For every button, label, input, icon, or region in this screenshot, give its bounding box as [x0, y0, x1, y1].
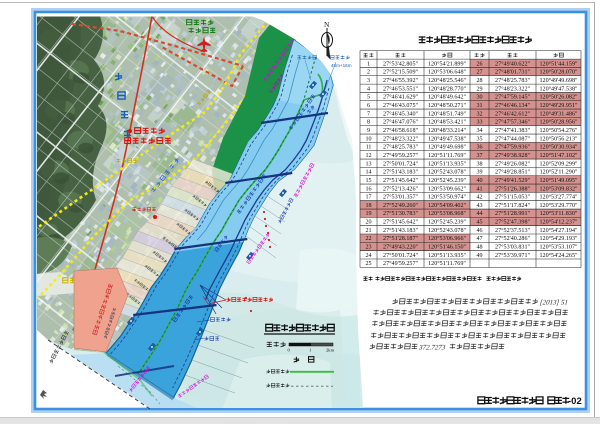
svg-text:27°49'59.257": 27°49'59.257"	[383, 260, 418, 267]
svg-text:27°48'25.783": 27°48'25.783"	[495, 77, 530, 84]
svg-text:27°49'40.622": 27°49'40.622"	[495, 60, 530, 67]
svg-text:120°48'50.271": 120°48'50.271"	[428, 102, 467, 109]
svg-text:120°50'30.934": 120°50'30.934"	[539, 144, 578, 151]
svg-text:21: 21	[365, 228, 371, 234]
svg-text:N: N	[324, 20, 330, 29]
svg-text:120°51'13.935": 120°51'13.935"	[428, 160, 467, 167]
svg-text:14: 14	[365, 170, 371, 176]
svg-text:120°52'43.078": 120°52'43.078"	[428, 227, 467, 234]
svg-text:120°48'25.546": 120°48'25.546"	[428, 77, 467, 84]
svg-text:18: 18	[365, 203, 371, 209]
svg-text:120°50'54.276": 120°50'54.276"	[539, 127, 578, 134]
svg-text:120°49'49.698": 120°49'49.698"	[539, 77, 578, 84]
svg-text:120°53'53.107": 120°53'53.107"	[539, 244, 578, 251]
svg-text:11: 11	[366, 145, 372, 151]
svg-text:47: 47	[476, 236, 482, 242]
svg-text:27°51'43.183": 27°51'43.183"	[383, 169, 418, 176]
svg-text:27°46'55.392": 27°46'55.392"	[383, 77, 418, 84]
svg-text:45: 45	[476, 220, 482, 226]
svg-text:120°53'50.974": 120°53'50.974"	[428, 194, 467, 201]
svg-text:27°51'43.183": 27°51'43.183"	[383, 227, 418, 234]
svg-text:120°53'08.968": 120°53'08.968"	[428, 210, 467, 217]
svg-text:49: 49	[476, 253, 482, 259]
svg-text:27°46'58.618": 27°46'58.618"	[383, 127, 418, 134]
svg-text:27°47'57.346": 27°47'57.346"	[495, 119, 530, 126]
svg-text:27°51'30.783": 27°51'30.783"	[383, 210, 418, 217]
svg-text:27°47'44.087": 27°47'44.087"	[495, 135, 530, 142]
svg-text:27°52'40.286": 27°52'40.286"	[495, 235, 530, 242]
svg-text:27°46'53.551": 27°46'53.551"	[383, 85, 418, 92]
svg-text:120°53'29.770": 120°53'29.770"	[539, 202, 578, 209]
svg-text:27°48'23.322": 27°48'23.322"	[383, 135, 418, 142]
svg-text:15: 15	[365, 178, 371, 184]
svg-text:27°46'47.076": 27°46'47.076"	[383, 119, 418, 126]
svg-text:27°53'01.357": 27°53'01.357"	[383, 194, 418, 201]
svg-text:38: 38	[476, 161, 482, 167]
svg-text:27°51'26.388": 27°51'26.388"	[495, 185, 530, 192]
svg-text:27°52'49.260": 27°52'49.260"	[383, 202, 418, 209]
svg-text:27°51'28.187": 27°51'28.187"	[383, 235, 418, 242]
svg-text:120°48'49.642": 120°48'49.642"	[428, 94, 467, 101]
svg-text:25: 25	[365, 261, 371, 267]
svg-text:4: 4	[367, 86, 370, 92]
svg-text:40: 40	[476, 178, 482, 184]
svg-text:6: 6	[367, 103, 370, 109]
svg-text:34: 34	[476, 128, 482, 134]
svg-text:27°51'45.642": 27°51'45.642"	[383, 177, 418, 184]
svg-text:1: 1	[367, 61, 370, 67]
svg-text:24: 24	[365, 253, 371, 259]
svg-text:2km: 2km	[326, 348, 335, 353]
svg-text:27°49'59.257": 27°49'59.257"	[383, 152, 418, 159]
svg-text:120°54'09.402": 120°54'09.402"	[428, 202, 467, 209]
svg-text:2: 2	[367, 70, 370, 76]
svg-text:27°48'01.731": 27°48'01.731"	[495, 69, 530, 76]
svg-text:120°54'29.193": 120°54'29.193"	[539, 235, 578, 242]
svg-text:120°51'49.095": 120°51'49.095"	[539, 177, 578, 184]
svg-text:120°54'24.265": 120°54'24.265"	[539, 252, 578, 259]
svg-text:22: 22	[365, 236, 371, 242]
svg-text:30: 30	[476, 95, 482, 101]
svg-text:372.7273: 372.7273	[418, 344, 447, 352]
svg-text:27°46'45.340": 27°46'45.340"	[383, 110, 418, 117]
svg-text:27°53'39.971": 27°53'39.971"	[495, 252, 530, 259]
svg-text:29: 29	[476, 86, 482, 92]
svg-text:7: 7	[367, 111, 370, 117]
svg-text:120°54'27.194": 120°54'27.194"	[539, 227, 578, 234]
svg-text:39: 39	[476, 170, 482, 176]
svg-text:120°49'47.538": 120°49'47.538"	[539, 85, 578, 92]
svg-text:27°50'01.724": 27°50'01.724"	[383, 252, 418, 259]
svg-text:120°53'06.648": 120°53'06.648"	[428, 69, 467, 76]
svg-text:23: 23	[365, 245, 371, 251]
svg-text:27°52'15.509": 27°52'15.509"	[383, 69, 418, 76]
svg-text:16: 16	[365, 186, 371, 192]
svg-text:27°47'41.383": 27°47'41.383"	[495, 127, 530, 134]
svg-text:120°50'28.070": 120°50'28.070"	[539, 69, 578, 76]
svg-text:42: 42	[476, 195, 482, 201]
svg-text:120°49'47.538": 120°49'47.538"	[428, 135, 467, 142]
svg-text:120°48'53.421": 120°48'53.421"	[428, 119, 467, 126]
svg-text:5: 5	[367, 95, 370, 101]
svg-text:13: 13	[365, 161, 371, 167]
svg-text:27°48'23.322": 27°48'23.322"	[495, 85, 530, 92]
svg-text:120°48'28.770": 120°48'28.770"	[428, 85, 467, 92]
svg-text:120°51'46.150": 120°51'46.150"	[428, 244, 467, 251]
svg-text:27: 27	[476, 70, 482, 76]
svg-text:19: 19	[365, 211, 371, 217]
svg-text:120°51'13.935": 120°51'13.935"	[428, 252, 467, 259]
svg-text:32: 32	[476, 111, 482, 117]
svg-text:12: 12	[365, 153, 371, 159]
svg-text:-02: -02	[568, 396, 582, 407]
svg-text:[2013] 51: [2013] 51	[539, 299, 568, 307]
svg-text:27°51'45.642": 27°51'45.642"	[383, 219, 418, 226]
svg-text:27°47'59.936": 27°47'59.936"	[495, 144, 530, 151]
svg-text:120°50'56.213": 120°50'56.213"	[539, 135, 578, 142]
svg-text:120°48'51.749": 120°48'51.749"	[428, 110, 467, 117]
svg-text:120°53'11.830": 120°53'11.830"	[540, 210, 578, 217]
svg-text:120°50'26.082": 120°50'26.082"	[539, 94, 578, 101]
svg-text:120°53'09.662": 120°53'09.662"	[428, 185, 467, 192]
svg-text:120°52'43.078": 120°52'43.078"	[428, 169, 467, 176]
svg-text:120°52'45.239": 120°52'45.239"	[428, 219, 467, 226]
svg-text:8: 8	[367, 120, 370, 126]
svg-text:10: 10	[365, 136, 371, 142]
svg-text:27°51'15.053": 27°51'15.053"	[495, 194, 530, 201]
svg-text:20: 20	[365, 220, 371, 226]
svg-text:120°53'06.966": 120°53'06.966"	[428, 235, 467, 242]
svg-text:120°54'12.237": 120°54'12.237"	[539, 219, 578, 226]
svg-text:27°46'46.134": 27°46'46.134"	[495, 102, 530, 109]
svg-text:27°47'59.145": 27°47'59.145"	[495, 94, 530, 101]
svg-text:120°49'29.951": 120°49'29.951"	[539, 102, 578, 109]
svg-text:37: 37	[476, 153, 482, 159]
svg-text:27°52'13.426": 27°52'13.426"	[383, 185, 418, 192]
svg-text:120°48'33.214": 120°48'33.214"	[428, 127, 467, 134]
svg-text:3: 3	[367, 78, 370, 84]
svg-text:43: 43	[476, 203, 482, 209]
svg-text:35: 35	[476, 136, 482, 142]
svg-text:120°51'44.159": 120°51'44.159"	[539, 60, 578, 67]
svg-text:120°53'27.774": 120°53'27.774"	[539, 194, 578, 201]
svg-text:120°54'21.899": 120°54'21.899"	[428, 60, 467, 67]
svg-text:27°52'37.513": 27°52'37.513"	[495, 227, 530, 234]
svg-text:120°51'11.769": 120°51'11.769"	[428, 260, 466, 267]
svg-text:27°46'43.075": 27°46'43.075"	[383, 102, 418, 109]
svg-text:120°49'49.698": 120°49'49.698"	[428, 144, 467, 151]
svg-text:27°48'25.783": 27°48'25.783"	[383, 144, 418, 151]
svg-text:120°52'09.299": 120°52'09.299"	[539, 160, 578, 167]
svg-text:46: 46	[476, 228, 482, 234]
svg-text:27°46'42.612": 27°46'42.612"	[495, 110, 530, 117]
svg-text:9: 9	[367, 128, 370, 134]
svg-text:31: 31	[476, 103, 482, 109]
svg-text:120°49'31.486": 120°49'31.486"	[539, 110, 578, 117]
svg-text:120°51'47.102": 120°51'47.102"	[539, 152, 578, 159]
svg-text:26: 26	[476, 61, 482, 67]
svg-text:120°53'09.832": 120°53'09.832"	[539, 185, 578, 192]
svg-text:27°50'01.724": 27°50'01.724"	[383, 160, 418, 167]
svg-text:27°49'38.928": 27°49'38.928"	[495, 152, 530, 159]
svg-text:28: 28	[476, 78, 482, 84]
svg-text:27°46'41.629": 27°46'41.629"	[383, 94, 418, 101]
svg-text:27°49'28.851": 27°49'28.851"	[495, 169, 530, 176]
svg-text:36: 36	[476, 145, 482, 151]
svg-text:27°49'41.529": 27°49'41.529"	[495, 177, 530, 184]
svg-text:120°50'28.956": 120°50'28.956"	[539, 119, 578, 126]
svg-text:17: 17	[365, 195, 371, 201]
svg-text:27°52'47.398": 27°52'47.398"	[495, 219, 530, 226]
svg-text:120°51'11.769": 120°51'11.769"	[428, 152, 466, 159]
svg-text:27°51'28.991": 27°51'28.991"	[495, 210, 530, 217]
svg-text:27°49'26.082": 27°49'26.082"	[495, 160, 530, 167]
svg-text:120°52'45.239": 120°52'45.239"	[428, 177, 467, 184]
svg-text:33: 33	[476, 120, 482, 126]
svg-text:48: 48	[476, 245, 482, 251]
svg-text:27°53'42.805": 27°53'42.805"	[383, 60, 418, 67]
svg-text:27°51'17.824": 27°51'17.824"	[495, 202, 530, 209]
svg-text:27°49'43.220": 27°49'43.220"	[383, 244, 418, 251]
svg-text:41: 41	[476, 186, 482, 192]
svg-text:27°53'03.831": 27°53'03.831"	[495, 244, 530, 251]
svg-text:120°52'11.290": 120°52'11.290"	[540, 169, 578, 176]
svg-text:44: 44	[476, 211, 482, 217]
